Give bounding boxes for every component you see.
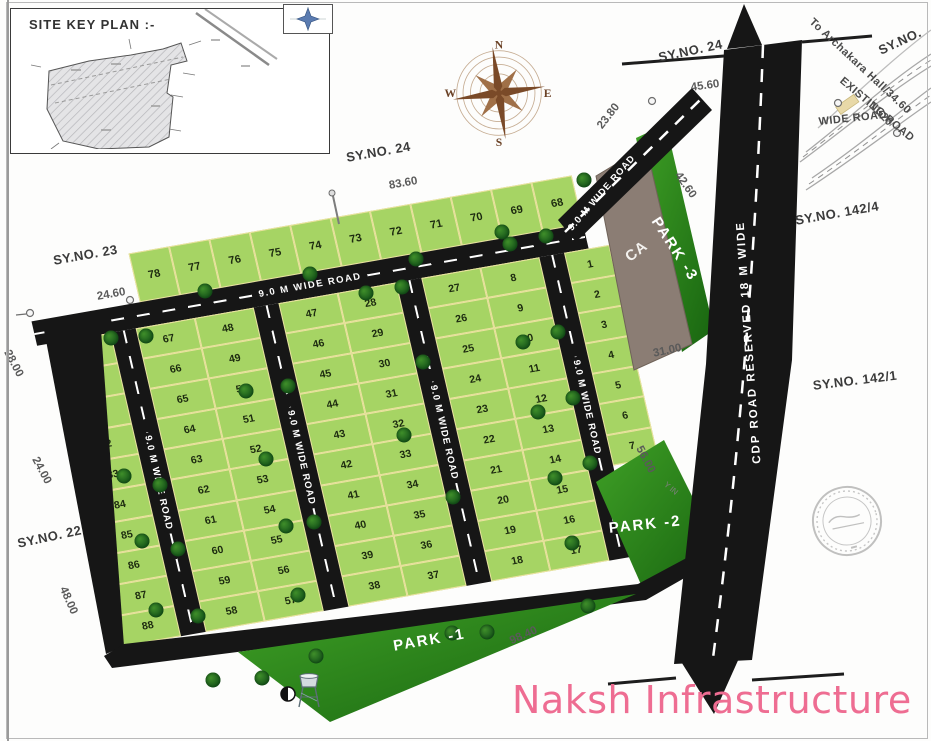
bm-marker-icon [281, 687, 295, 701]
site-key-plan: SITE KEY PLAN :- [10, 8, 330, 154]
plot-cell: 7 [606, 427, 658, 465]
site-key-plan-title: SITE KEY PLAN :- [29, 17, 155, 32]
park-label: PARK -1 [392, 625, 467, 654]
water-tank-icon [299, 674, 319, 707]
tree-icon [255, 671, 270, 686]
dimension-label: 28.00 [1, 348, 25, 379]
estate-layout: 7877767574737271706968 9.0 M WIDE ROAD 7… [35, 155, 775, 660]
tree-icon [309, 649, 324, 664]
compass-rose: N E S W [444, 38, 554, 148]
cdp-arrow-up [727, 4, 762, 49]
road-name-label: WIDE ROAD [818, 109, 888, 128]
survey-label: SY.NO. 24 [345, 139, 412, 165]
site-plan-canvas: 7877767574737271706968 9.0 M WIDE ROAD 7… [0, 0, 931, 741]
road-patch [836, 94, 859, 114]
tree-icon [480, 625, 495, 640]
brand-title: Naksh Infrastructure [512, 678, 912, 722]
existing-road-lines [800, 30, 931, 190]
survey-label: SY.NO. 24 [657, 36, 724, 64]
compass-w: W [445, 87, 457, 100]
dimension-label: 98.40 [508, 624, 539, 647]
dimension-label: 11.20 [867, 100, 895, 128]
road-name-label: EXISTING ROAD [837, 75, 916, 144]
survey-label: SY.NO. 22 [16, 522, 83, 550]
survey-label: SY.NO. [876, 25, 924, 58]
dimension-label: 48.00 [57, 585, 80, 616]
dimension-label: 45.60 [690, 78, 720, 94]
dimension-label: 83.60 [388, 175, 418, 192]
tree-icon [445, 626, 460, 641]
road-name-label: To Archakara Hall/34.60 [807, 16, 913, 116]
mini-compass-icon [283, 4, 333, 34]
compass-e: E [544, 87, 552, 100]
survey-label: SY.NO. 142/4 [794, 198, 880, 227]
scan-edge [7, 0, 9, 741]
compass-s: S [496, 136, 502, 148]
compass-n: N [495, 39, 504, 52]
dimension-label: 24.00 [29, 455, 53, 486]
tree-icon [206, 673, 221, 688]
tree-icon [581, 599, 596, 614]
stamp-seal [805, 479, 888, 562]
dimension-label: 23.80 [595, 101, 622, 131]
survey-label: SY.NO. 142/1 [812, 368, 898, 393]
